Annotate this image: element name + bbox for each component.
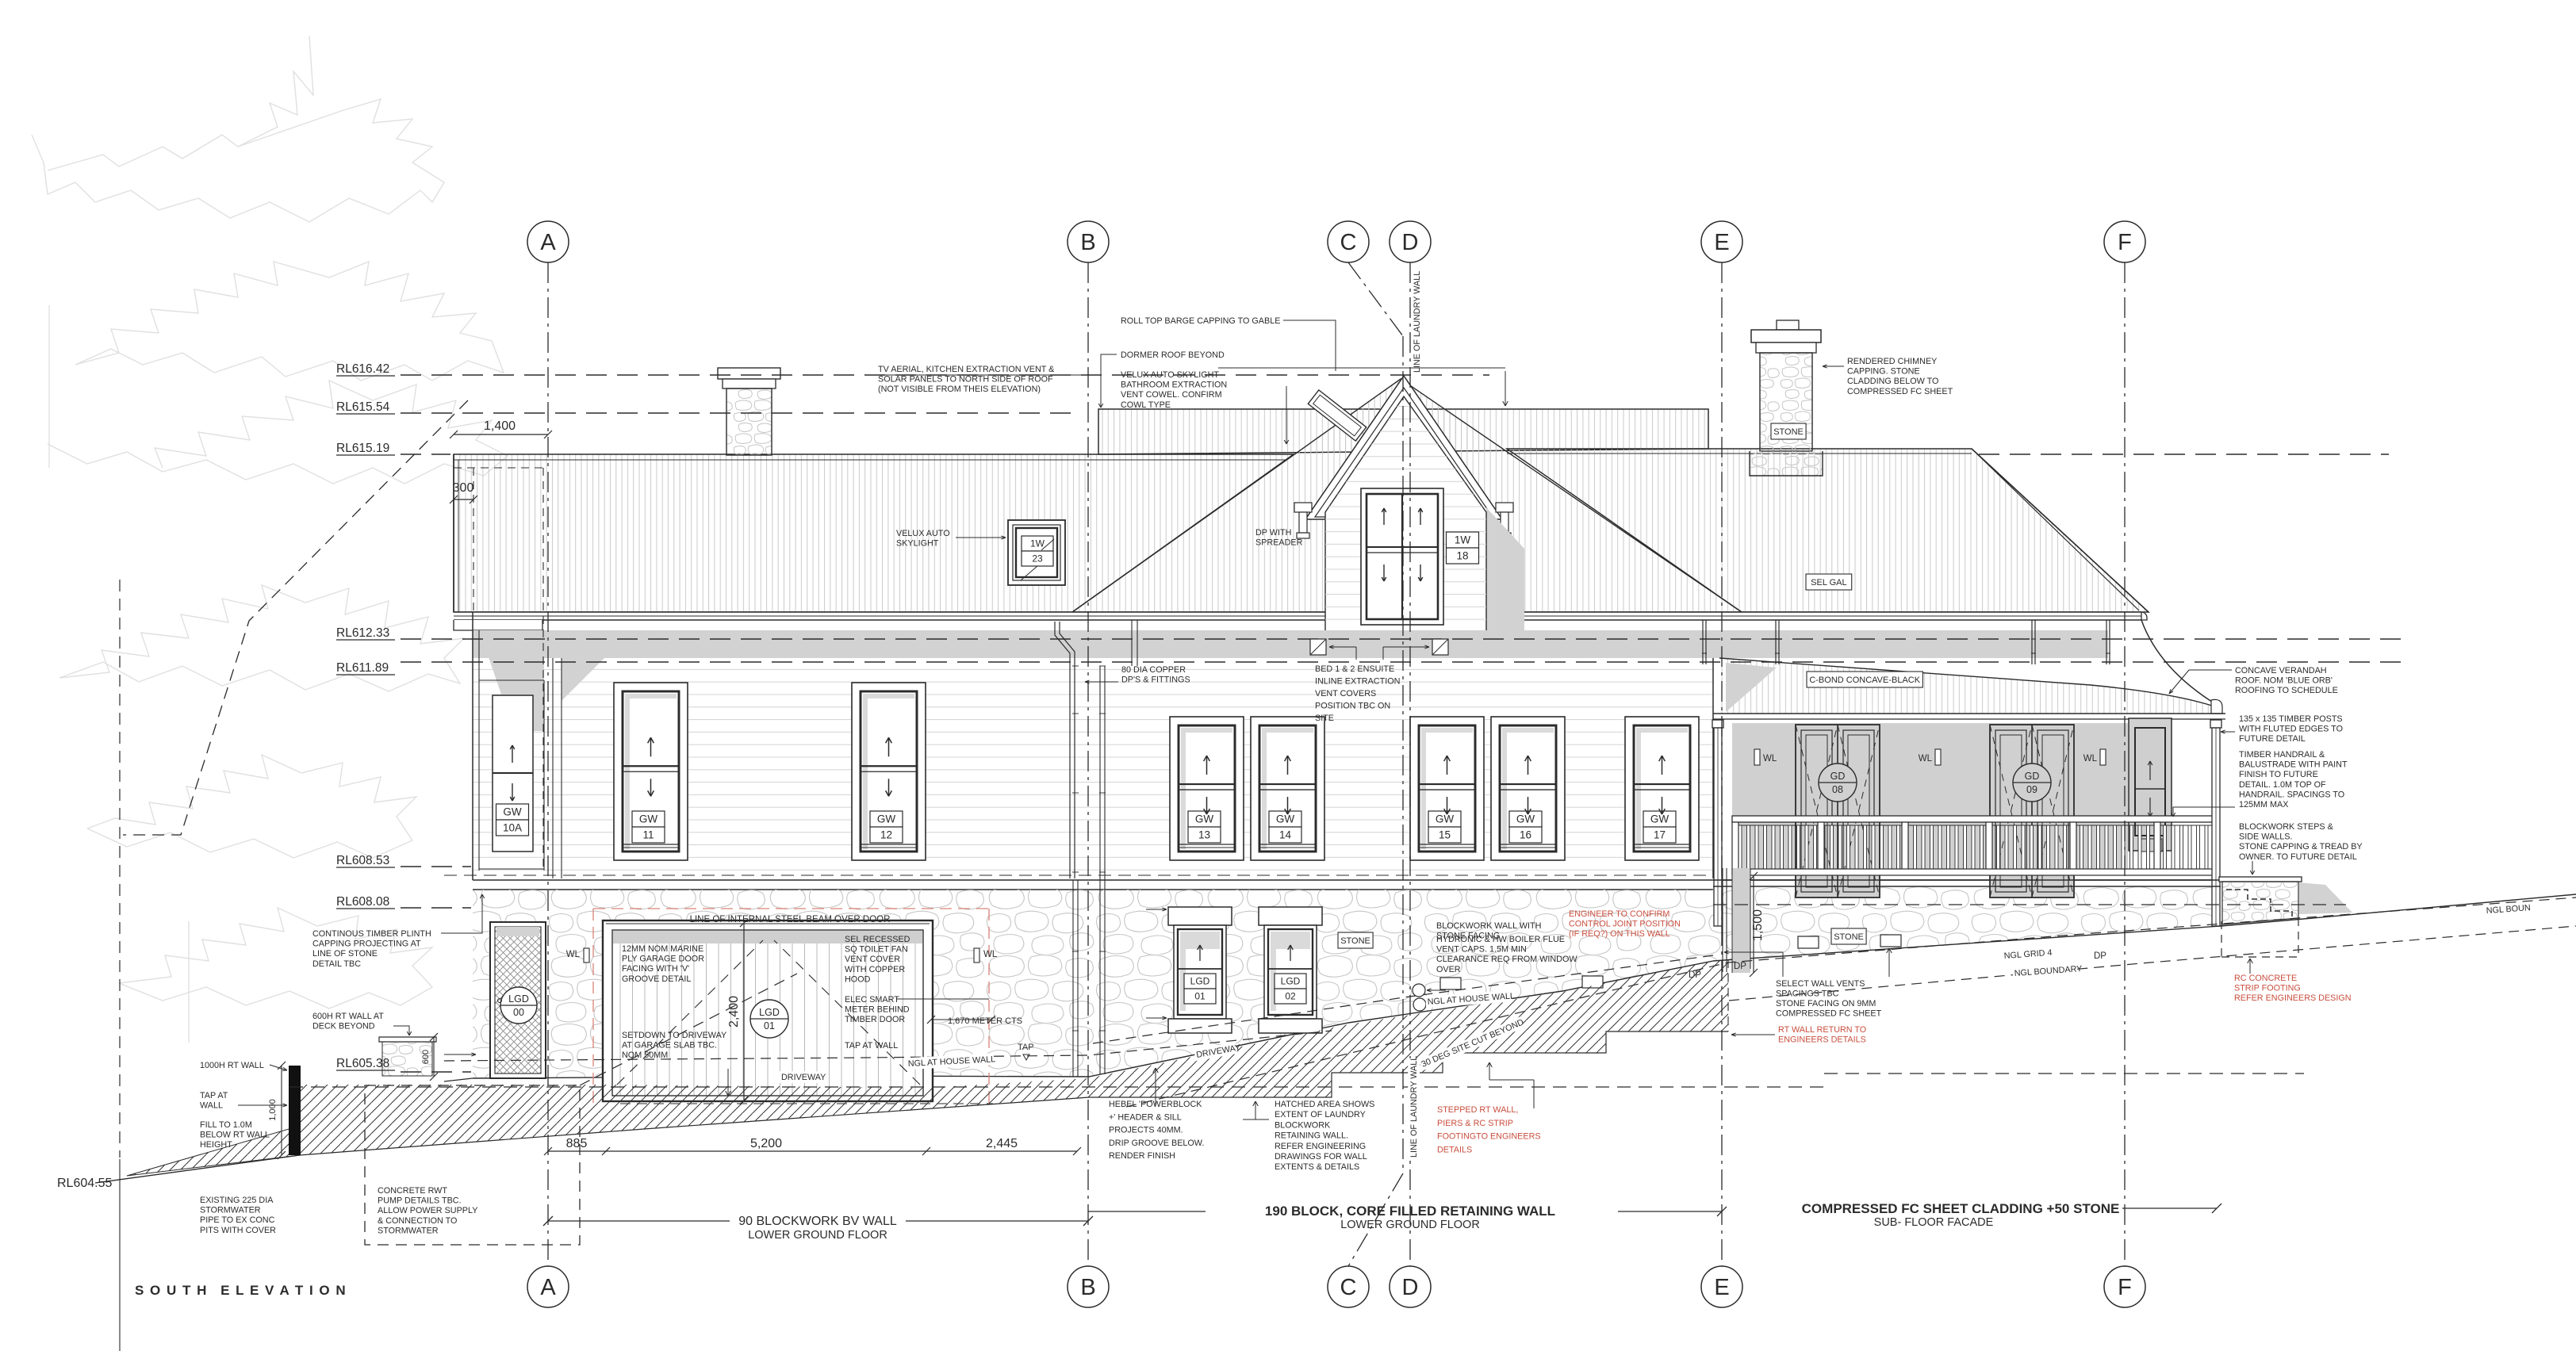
svg-text:SQ TOILET FAN: SQ TOILET FAN [845,945,908,955]
svg-text:WL: WL [2083,754,2098,764]
svg-text:23: 23 [1032,553,1043,565]
svg-text:WITH COPPER: WITH COPPER [845,965,905,974]
svg-text:ROOF. NOM 'BLUE ORB': ROOF. NOM 'BLUE ORB' [2235,676,2333,686]
svg-text:GW: GW [877,813,896,825]
svg-text:PIPE TO EX CONC: PIPE TO EX CONC [200,1215,275,1225]
svg-text:STONE FACING ON 9MM: STONE FACING ON 9MM [1776,999,1876,1008]
svg-text:DETAILS: DETAILS [1437,1145,1472,1154]
svg-text:DRAWINGS FOR WALL: DRAWINGS FOR WALL [1275,1152,1367,1162]
svg-text:1,670 METER CTS: 1,670 METER CTS [948,1016,1022,1026]
svg-text:HANDRAIL. SPACINGS TO: HANDRAIL. SPACINGS TO [2239,790,2344,799]
svg-text:SUB- FLOOR FACADE: SUB- FLOOR FACADE [1874,1216,1994,1229]
svg-text:STONE CAPPING & TREAD BY: STONE CAPPING & TREAD BY [2239,842,2363,852]
svg-text:CONTINOUS TIMBER PLINTH: CONTINOUS TIMBER PLINTH [312,929,431,939]
svg-text:SKYLIGHT: SKYLIGHT [896,539,939,549]
svg-text:+' HEADER & SILL: +' HEADER & SILL [1109,1112,1182,1122]
svg-text:DORMER ROOF BEYOND: DORMER ROOF BEYOND [1121,350,1225,360]
svg-text:BLOCKWORK STEPS &: BLOCKWORK STEPS & [2239,822,2334,832]
svg-text:PITS WITH COVER: PITS WITH COVER [200,1226,276,1235]
svg-text:ROLL TOP BARGE CAPPING TO GABL: ROLL TOP BARGE CAPPING TO GABLE [1121,316,1280,326]
svg-text:HOOD: HOOD [845,974,871,984]
svg-text:A: A [540,230,556,255]
svg-text:REFER ENGINEERS DESIGN: REFER ENGINEERS DESIGN [2234,993,2352,1003]
svg-text:SEL RECESSED: SEL RECESSED [845,935,910,944]
svg-text:FOOTINGTO ENGINEERS: FOOTINGTO ENGINEERS [1437,1132,1541,1142]
svg-text:C-BOND CONCAVE-BLACK: C-BOND CONCAVE-BLACK [1809,675,1920,685]
svg-text:12: 12 [880,829,892,841]
svg-text:FUTURE DETAIL: FUTURE DETAIL [2239,734,2306,744]
svg-text:13: 13 [1198,829,1210,841]
svg-text:RL608.53: RL608.53 [336,854,389,867]
svg-text:LINE OF LAUNDRY WALL: LINE OF LAUNDRY WALL [1409,1056,1419,1158]
svg-text:600H RT WALL AT: 600H RT WALL AT [312,1012,384,1021]
svg-text:DETAIL TBC: DETAIL TBC [312,959,361,969]
svg-text:DECK BEYOND: DECK BEYOND [312,1022,375,1031]
svg-text:TV AERIAL, KITCHEN EXTRACTION: TV AERIAL, KITCHEN EXTRACTION VENT & [878,365,1055,374]
svg-text:PUMP DETAILS TBC.: PUMP DETAILS TBC. [378,1196,462,1206]
svg-text:BALUSTRADE WITH PAINT: BALUSTRADE WITH PAINT [2239,760,2348,770]
svg-text:WITH FLUTED EDGES TO: WITH FLUTED EDGES TO [2239,725,2343,734]
svg-text:POSITION TBC ON: POSITION TBC ON [1315,702,1390,711]
svg-text:STRIP FOOTING: STRIP FOOTING [2234,984,2301,993]
svg-text:SIDE WALLS.: SIDE WALLS. [2239,832,2292,842]
svg-text:1,400: 1,400 [484,419,516,433]
svg-text:S O U T H E L E V A T I O N: S O U T H E L E V A T I O N [135,1283,347,1298]
svg-text:LGD: LGD [759,1007,780,1018]
svg-text:01: 01 [764,1020,775,1031]
svg-text:RENDERED CHIMNEY: RENDERED CHIMNEY [1847,357,1937,366]
svg-text:ALLOW POWER SUPPLY: ALLOW POWER SUPPLY [378,1206,477,1215]
svg-text:SITE: SITE [1315,714,1334,723]
svg-text:EXTENTS & DETAILS: EXTENTS & DETAILS [1275,1162,1359,1172]
svg-text:190 BLOCK, CORE FILLED RETAINI: 190 BLOCK, CORE FILLED RETAINING WALL [1265,1204,1555,1219]
svg-text:LGD: LGD [1190,976,1210,987]
svg-text:LINE OF STONE: LINE OF STONE [312,949,378,959]
svg-text:2,445: 2,445 [986,1137,1018,1150]
svg-text:DP: DP [1734,962,1746,971]
svg-text:OVER: OVER [1436,965,1461,974]
svg-text:TAP AT: TAP AT [200,1091,228,1100]
svg-text:STONE: STONE [1773,427,1804,437]
svg-text:SEL GAL: SEL GAL [1811,578,1846,587]
svg-text:300: 300 [453,481,474,495]
svg-text:VENT CAPS. 1.5M MIN: VENT CAPS. 1.5M MIN [1436,945,1527,955]
svg-text:GW: GW [1650,813,1669,825]
svg-text:RL604.55: RL604.55 [57,1177,112,1190]
svg-text:ROOFING TO SCHEDULE: ROOFING TO SCHEDULE [2235,686,2338,695]
svg-text:COMPRESSED FC SHEET CLADDING +: COMPRESSED FC SHEET CLADDING +50 STONE [1802,1201,2120,1216]
svg-text:STONE: STONE [1834,932,1864,942]
svg-text:125MM MAX: 125MM MAX [2239,800,2288,809]
svg-text:VENT COVER: VENT COVER [845,955,900,964]
svg-text:RL615.19: RL615.19 [336,442,389,455]
svg-text:BED 1 & 2 ENSUITE: BED 1 & 2 ENSUITE [1315,664,1394,674]
svg-text:600: 600 [421,1050,431,1064]
svg-text:CONCRETE RWT: CONCRETE RWT [378,1186,447,1196]
svg-text:WL: WL [1919,754,1933,764]
svg-text:18: 18 [1456,550,1468,562]
svg-text:(NOT VISIBLE FROM THEIS ELEVAT: (NOT VISIBLE FROM THEIS ELEVATION) [878,385,1041,394]
svg-text:METER BEHIND: METER BEHIND [845,1005,910,1015]
svg-text:1W: 1W [1030,538,1045,549]
svg-text:LOWER GROUND FLOOR: LOWER GROUND FLOOR [748,1229,887,1242]
svg-text:TIMBER DOOR: TIMBER DOOR [845,1015,905,1024]
svg-text:INLINE EXTRACTION: INLINE EXTRACTION [1315,677,1400,687]
svg-text:VELUX AUTO: VELUX AUTO [896,529,950,538]
svg-text:E: E [1714,1275,1729,1300]
svg-text:NOM 50MM: NOM 50MM [622,1051,668,1060]
svg-text:D: D [1402,1275,1419,1300]
svg-text:08: 08 [1832,784,1843,795]
svg-text:VELUX AUTO SKYLIGHT: VELUX AUTO SKYLIGHT [1121,370,1219,380]
svg-text:RL605.38: RL605.38 [336,1057,389,1070]
svg-text:5,200: 5,200 [750,1137,782,1150]
svg-text:EXISTING 225 DIA: EXISTING 225 DIA [200,1196,274,1205]
svg-text:TIMBER HANDRAIL &: TIMBER HANDRAIL & [2239,750,2325,760]
svg-text:LGD: LGD [508,993,529,1005]
svg-text:80 DIA COPPER: 80 DIA COPPER [1121,665,1186,675]
svg-text:RENDER FINISH: RENDER FINISH [1109,1151,1175,1161]
svg-text:15: 15 [1439,829,1451,841]
svg-text:RL608.08: RL608.08 [336,895,389,909]
svg-text:WL: WL [1763,754,1777,764]
svg-text:B: B [1080,230,1095,255]
svg-text:RC CONCRETE: RC CONCRETE [2234,974,2297,983]
svg-text:HEIGHT: HEIGHT [200,1140,232,1150]
svg-text:COWL TYPE: COWL TYPE [1121,400,1171,410]
svg-text:B: B [1080,1275,1095,1300]
svg-text:LGD: LGD [1281,976,1301,987]
svg-text:WL: WL [983,950,998,959]
svg-text:GD: GD [1830,771,1846,782]
svg-text:DP: DP [1689,970,1701,980]
svg-text:1W: 1W [1455,534,1471,546]
svg-text:STORMWATER: STORMWATER [378,1226,439,1235]
svg-text:RL611.89: RL611.89 [336,661,389,675]
svg-text:E: E [1714,230,1729,255]
svg-text:REFER ENGINEERING: REFER ENGINEERING [1275,1142,1366,1151]
svg-text:885: 885 [566,1137,588,1150]
svg-text:SPACINGS TBC: SPACINGS TBC [1776,989,1839,999]
svg-text:GW: GW [503,806,522,818]
svg-text:F: F [2118,1275,2132,1300]
svg-text:DP: DP [2094,951,2106,961]
svg-text:GW: GW [1195,813,1214,825]
svg-text:ENGINEERS DETAILS: ENGINEERS DETAILS [1778,1035,1866,1045]
svg-text:& CONNECTION TO: & CONNECTION TO [378,1216,457,1226]
svg-text:BLOCKWORK: BLOCKWORK [1275,1120,1331,1130]
svg-text:STORMWATER: STORMWATER [200,1206,261,1215]
svg-text:LOWER GROUND FLOOR: LOWER GROUND FLOOR [1340,1219,1480,1231]
svg-text:RETAINING WALL.: RETAINING WALL. [1275,1131,1348,1141]
svg-text:WALL: WALL [200,1101,223,1111]
svg-text:GW: GW [1276,813,1295,825]
svg-text:CLEARANCE REQ FROM WINDOW: CLEARANCE REQ FROM WINDOW [1436,955,1577,964]
svg-text:FACING WITH 'V': FACING WITH 'V' [622,964,689,974]
svg-text:RT WALL RETURN TO: RT WALL RETURN TO [1778,1025,1866,1035]
svg-text:CONTROL JOINT POSITION: CONTROL JOINT POSITION [1569,920,1681,929]
svg-text:1000H RT WALL: 1000H RT WALL [200,1061,264,1070]
svg-text:00: 00 [513,1007,524,1018]
svg-text:TAP: TAP [1018,1043,1034,1052]
svg-text:AT GARAGE SLAB TBC.: AT GARAGE SLAB TBC. [622,1041,717,1051]
svg-text:ENGINEER TO CONFIRM: ENGINEER TO CONFIRM [1569,909,1669,919]
svg-text:SETDOWN TO DRIVEWAY: SETDOWN TO DRIVEWAY [622,1031,726,1040]
svg-text:PROJECTS 40MM.: PROJECTS 40MM. [1109,1126,1183,1135]
svg-text:90 BLOCKWORK BV WALL: 90 BLOCKWORK BV WALL [738,1215,897,1228]
svg-text:GW: GW [639,813,658,825]
svg-text:VENT COWEL. CONFIRM: VENT COWEL. CONFIRM [1121,390,1222,400]
svg-text:14: 14 [1279,829,1292,841]
svg-text:BATHROOM EXTRACTION: BATHROOM EXTRACTION [1121,381,1227,390]
svg-text:COMPRESSED FC SHEET: COMPRESSED FC SHEET [1776,1009,1882,1019]
svg-text:DRIVEWAY: DRIVEWAY [781,1073,826,1082]
svg-text:FINISH TO FUTURE: FINISH TO FUTURE [2239,770,2318,779]
svg-text:ELEC SMART: ELEC SMART [845,995,899,1005]
svg-text:GD: GD [2025,771,2040,782]
svg-text:02: 02 [1285,991,1296,1002]
svg-text:STONE: STONE [1340,936,1370,946]
svg-text:BLOCKWORK WALL WITH: BLOCKWORK WALL WITH [1436,921,1541,931]
svg-text:BELOW RT WALL: BELOW RT WALL [200,1131,270,1140]
svg-text:CLADDING BELOW TO: CLADDING BELOW TO [1847,377,1938,386]
svg-text:F: F [2118,230,2132,255]
svg-text:C: C [1340,230,1357,255]
svg-text:TAP AT WALL: TAP AT WALL [845,1041,898,1051]
svg-text:1,500: 1,500 [1751,909,1765,941]
svg-text:D: D [1402,230,1419,255]
svg-text:12MM NOM MARINE: 12MM NOM MARINE [622,944,703,954]
svg-text:17: 17 [1654,829,1666,841]
svg-text:RL616.42: RL616.42 [336,362,389,376]
svg-text:STEPPED RT WALL,: STEPPED RT WALL, [1437,1105,1518,1115]
svg-text:09: 09 [2026,784,2037,795]
svg-text:A: A [540,1275,556,1300]
svg-text:GW: GW [1516,813,1535,825]
svg-text:HATCHED AREA SHOWS: HATCHED AREA SHOWS [1275,1100,1374,1109]
svg-text:PLY GARAGE DOOR: PLY GARAGE DOOR [622,955,704,964]
svg-text:DRIP GROOVE BELOW.: DRIP GROOVE BELOW. [1109,1139,1204,1148]
svg-text:OWNER. TO FUTURE DETAIL: OWNER. TO FUTURE DETAIL [2239,852,2357,862]
svg-text:COMPRESSED FC SHEET: COMPRESSED FC SHEET [1847,387,1953,396]
svg-text:CAPPING. STONE: CAPPING. STONE [1847,367,1920,377]
svg-text:SOLAR PANELS TO NORTH SIDE OF: SOLAR PANELS TO NORTH SIDE OF ROOF [878,375,1053,385]
svg-text:GROOVE DETAIL: GROOVE DETAIL [622,974,691,984]
svg-text:WL: WL [566,950,581,959]
svg-text:SPREADER: SPREADER [1255,538,1303,548]
svg-text:DP'S & FITTINGS: DP'S & FITTINGS [1121,675,1190,685]
svg-text:10A: 10A [503,822,522,834]
svg-text:VENT COVERS: VENT COVERS [1315,689,1376,698]
svg-text:2,400: 2,400 [727,996,741,1028]
svg-text:11: 11 [642,829,654,841]
svg-text:GW: GW [1436,813,1455,825]
svg-text:LINE OF LAUNDRY WALL: LINE OF LAUNDRY WALL [1413,271,1422,373]
svg-text:HYDRONIC & HW BOILER FLUE: HYDRONIC & HW BOILER FLUE [1436,935,1565,944]
svg-text:FILL TO 1.0M: FILL TO 1.0M [200,1120,252,1130]
svg-text:RL615.54: RL615.54 [336,400,390,414]
svg-text:1,000: 1,000 [268,1099,278,1121]
svg-text:DP WITH: DP WITH [1255,528,1291,538]
svg-text:C: C [1340,1275,1357,1300]
svg-text:135 x 135 TIMBER POSTS: 135 x 135 TIMBER POSTS [2239,714,2343,724]
svg-text:RL612.33: RL612.33 [336,626,389,640]
svg-text:16: 16 [1520,829,1531,841]
svg-text:PIERS & RC STRIP: PIERS & RC STRIP [1437,1119,1513,1128]
svg-text:01: 01 [1194,991,1206,1002]
svg-text:(IF REQ?) ON THIS WALL: (IF REQ?) ON THIS WALL [1569,929,1670,939]
svg-text:EXTENT OF LAUNDRY: EXTENT OF LAUNDRY [1275,1110,1366,1119]
svg-text:SELECT WALL VENTS: SELECT WALL VENTS [1776,979,1865,989]
svg-text:DETAIL. 1.0M TOP OF: DETAIL. 1.0M TOP OF [2239,780,2326,790]
svg-text:CONCAVE VERANDAH: CONCAVE VERANDAH [2235,666,2327,675]
svg-text:CAPPING PROJECTING AT: CAPPING PROJECTING AT [312,940,421,949]
svg-text:LINE OF INTERNAL STEEL BEAM OV: LINE OF INTERNAL STEEL BEAM OVER DOOR [690,915,891,924]
